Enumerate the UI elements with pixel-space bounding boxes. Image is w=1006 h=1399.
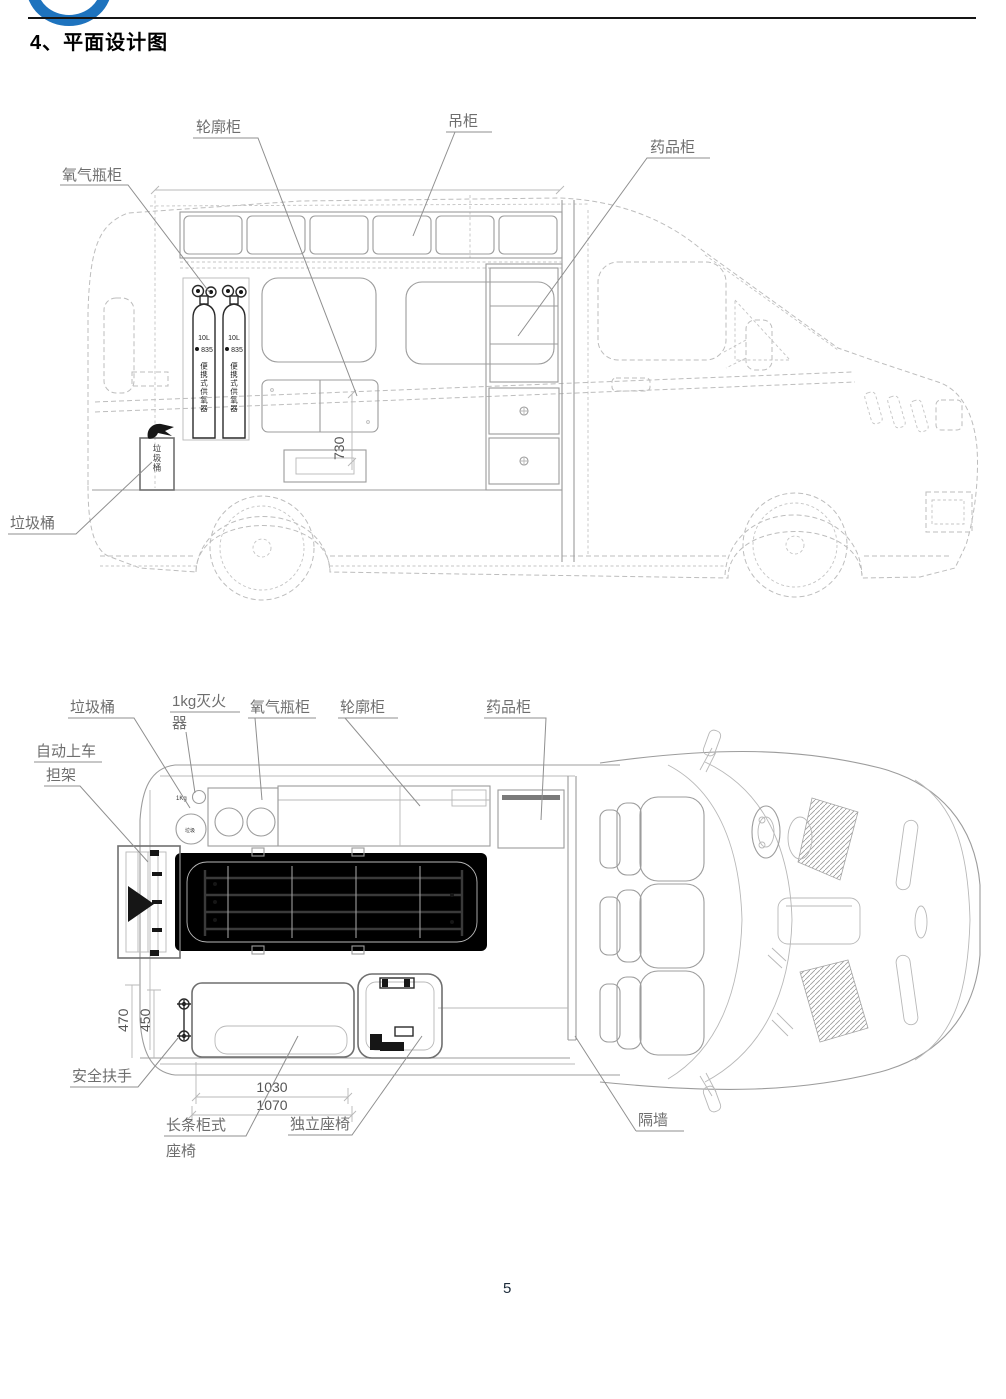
dim-730-value: 730: [331, 436, 347, 460]
label-single-seat: 独立座椅: [290, 1116, 350, 1133]
windshield-grilles: [798, 798, 868, 1042]
cylinder1-model: 835: [201, 347, 213, 354]
label-stretcher-1: 自动上车: [36, 743, 96, 760]
label-hanging-cabinet: 吊柜: [448, 113, 478, 130]
front-bumper-detail: [926, 492, 972, 532]
label-medicine-cabinet-top: 药品柜: [486, 699, 531, 716]
medicine-cabinet-top: [498, 790, 564, 848]
top-mirrors: [700, 729, 722, 1114]
label-wheel-cabinet: 轮廓柜: [196, 119, 241, 136]
handrail-top: [177, 999, 191, 1041]
label-fire-extinguisher-1: 1kg灭火: [172, 693, 226, 710]
oxygen-bottles-top: [208, 788, 278, 846]
cylinder2-capacity: 10L: [228, 335, 240, 342]
stretcher-top: [175, 848, 487, 954]
label-stretcher-2: 担架: [46, 767, 76, 784]
label-bench-seat-1: 长条柜式: [166, 1117, 226, 1134]
dim-1070: 1070: [256, 1097, 287, 1113]
trash-bin-top: 垃圾: [176, 814, 206, 844]
cylinder1-side-text: 便携式供氧器: [199, 361, 208, 414]
cylinder1-capacity: 10L: [198, 335, 210, 342]
cylinder2-model: 835: [231, 347, 243, 354]
document-page: 4、平面设计图: [0, 0, 1006, 1399]
single-seat-top: [358, 974, 442, 1058]
hood-console: [778, 898, 860, 944]
interior-top: 垃圾 1Kg: [118, 786, 570, 1058]
label-trash-bin: 垃圾桶: [10, 515, 55, 532]
dim-470: 470: [115, 1008, 131, 1032]
hanging-cabinets: [180, 212, 562, 268]
medicine-cabinet-side: [486, 264, 562, 490]
top-view-drawing: 垃圾 1Kg: [34, 693, 980, 1160]
wheel-arch-cabinet-side: [262, 380, 378, 432]
plan-drawings: 730 10L 835 便携式供氧器 10: [0, 0, 1006, 1399]
label-wheel-cabinet-top: 轮廓柜: [340, 699, 385, 716]
partition-wall: [568, 776, 576, 1040]
extinguisher-mark: 1Kg: [176, 796, 187, 802]
cab-seats: [600, 797, 704, 1055]
dim-450: 450: [137, 1008, 153, 1032]
rear-door-panel: [118, 846, 180, 958]
spray-nozzle-icon: [148, 424, 174, 439]
trash-top-mark: 垃圾: [185, 827, 195, 834]
label-trash-bin-top: 垃圾桶: [70, 699, 115, 716]
label-medicine-cabinet: 药品柜: [650, 139, 695, 156]
oxygen-cylinders: 10L 835 便携式供氧器 10L 835 便携式供氧器: [193, 286, 247, 439]
side-view-drawing: 730 10L 835 便携式供氧器 10: [8, 113, 978, 600]
label-oxygen-cabinet: 氧气瓶柜: [62, 167, 122, 184]
cylinder2-side-text: 便携式供氧器: [229, 361, 238, 414]
counter-top: [278, 786, 490, 846]
bench-seat-top: [192, 983, 354, 1057]
label-fire-extinguisher-2: 器: [172, 715, 187, 732]
trash-bin-side: 垃圾桶: [140, 424, 174, 490]
side-view-labels: 氧气瓶柜 轮廓柜 吊柜 药品柜 垃圾桶: [8, 113, 710, 534]
side-mirror: [724, 320, 772, 370]
label-partition: 隔墙: [638, 1112, 668, 1129]
hood-vents: [864, 391, 962, 433]
label-handrail: 安全扶手: [72, 1067, 132, 1085]
dim-1030: 1030: [256, 1079, 287, 1095]
top-view-dimensions: 470 450 1030 1070: [115, 985, 356, 1122]
label-oxygen-cabinet-top: 氧气瓶柜: [250, 699, 310, 716]
label-bench-seat-2: 座椅: [166, 1143, 196, 1160]
trash-bin-vertical-text: 垃圾桶: [152, 443, 162, 472]
page-number: 5: [503, 1280, 511, 1297]
interior-side: 730 10L 835 便携式供氧器 10: [92, 186, 574, 562]
bench-box-side: [284, 450, 366, 482]
